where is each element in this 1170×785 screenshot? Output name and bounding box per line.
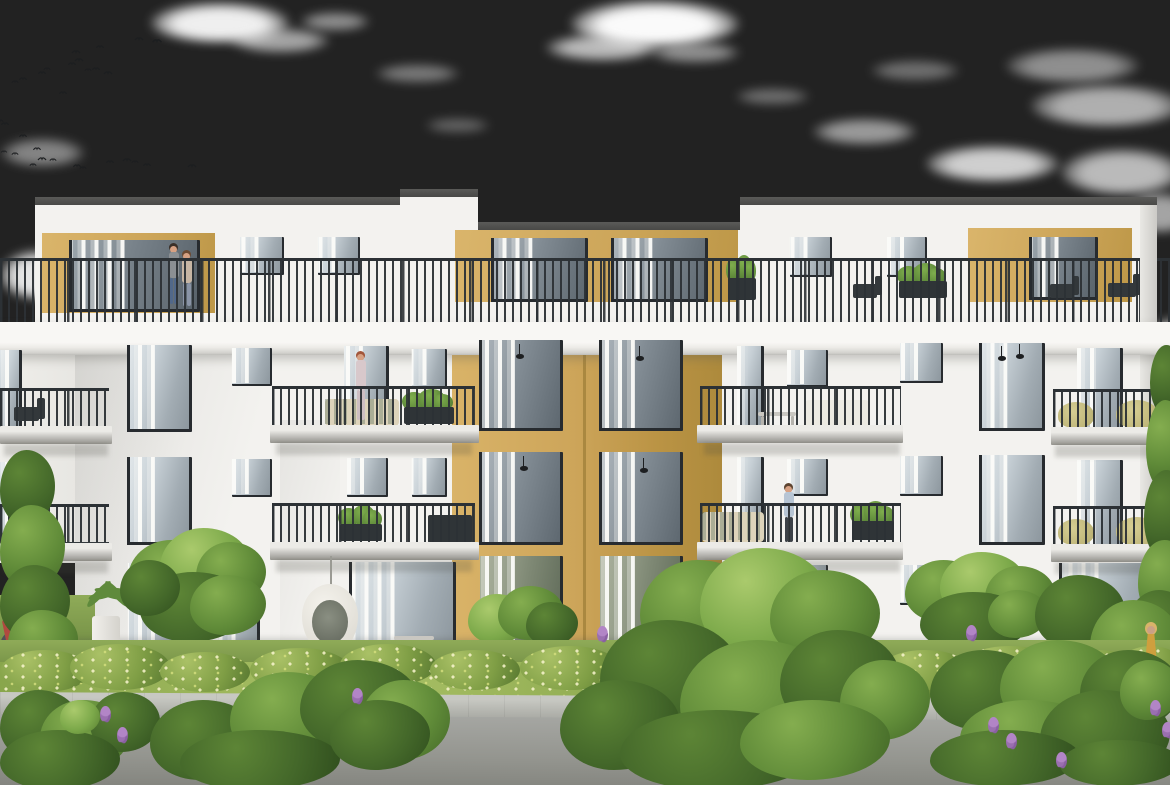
bird-icon [1, 151, 7, 152]
bird-icon [143, 164, 150, 166]
gold-panel-seam [583, 322, 586, 672]
pendant-lamp [640, 468, 648, 473]
hedge-bush [70, 644, 170, 690]
curtain [412, 458, 427, 494]
bird-icon [106, 161, 113, 163]
lilac-flowers [352, 688, 363, 705]
curtain [980, 455, 1007, 542]
curtain [128, 345, 155, 429]
roof-slab [740, 197, 1157, 205]
bird-icon [59, 92, 66, 94]
bird-icon [135, 38, 143, 40]
pendant-lamp-cord [1001, 346, 1002, 356]
foreground-shrub [1060, 740, 1170, 785]
bird-icon [132, 161, 138, 163]
bird-icon [30, 164, 36, 166]
cloud [1030, 84, 1170, 126]
cloud [375, 64, 460, 82]
bird-icon [96, 46, 103, 48]
cloud [425, 118, 490, 132]
bird-icon [68, 63, 75, 65]
egg-chair-opening [312, 600, 348, 644]
cloud [735, 88, 810, 104]
window-mullion [979, 343, 982, 431]
window [232, 348, 272, 386]
cloud [545, 34, 660, 60]
window-mullion [979, 455, 982, 545]
lilac-flowers [988, 717, 999, 734]
curtain [600, 452, 635, 542]
window [900, 343, 943, 383]
balcony-slab [270, 425, 479, 443]
window-mullion [599, 452, 602, 545]
curtain [347, 458, 364, 494]
bird-icon [0, 120, 3, 122]
window [600, 340, 683, 431]
lilac-flowers [1006, 733, 1017, 750]
lilac-flowers [597, 626, 608, 643]
window [900, 456, 943, 496]
foreground-shrub [1120, 660, 1170, 720]
lilac-flowers [966, 625, 977, 642]
curtain [128, 457, 155, 542]
window [412, 349, 447, 388]
window [787, 350, 828, 387]
pendant-lamp-cord [523, 456, 524, 466]
pendant-lamp-cord [643, 458, 644, 468]
bird-icon [19, 135, 26, 137]
curtain [412, 349, 427, 385]
bird-icon [73, 165, 80, 167]
bird-icon [19, 78, 26, 80]
balcony-slab [270, 542, 479, 560]
bird-icon [75, 59, 83, 61]
curtain [900, 343, 918, 380]
bird-icon [80, 167, 86, 169]
bird-icon [38, 158, 46, 160]
cloud [925, 145, 1060, 181]
swing-rope [330, 556, 332, 586]
window-mullion [127, 345, 130, 432]
bird-icon [1, 123, 8, 125]
roof-terrace-railing [0, 258, 1170, 326]
bird-icon [92, 68, 99, 70]
bird-icon [12, 153, 18, 155]
pendant-lamp [998, 356, 1006, 361]
bird-icon [38, 72, 45, 74]
bird-icon [12, 81, 18, 83]
roof-slab [478, 222, 740, 230]
balcony-railing [700, 503, 901, 544]
balcony-shadow [704, 443, 900, 455]
window [600, 452, 683, 545]
curtain [900, 456, 918, 493]
bird-icon [44, 68, 50, 70]
bird-icon [123, 159, 131, 161]
curtain [787, 350, 804, 384]
bird-icon [104, 72, 112, 74]
person-head [1147, 626, 1155, 634]
lilac-flowers [1056, 752, 1067, 769]
curtain [600, 340, 635, 428]
cloud [812, 118, 917, 144]
balcony-railing [700, 386, 901, 427]
cloud [300, 12, 370, 30]
bird-icon [188, 165, 196, 167]
pendant-lamp [520, 466, 528, 471]
roof-slab [35, 197, 400, 205]
cloud [1005, 48, 1140, 82]
window [787, 459, 828, 496]
bird-icon [85, 69, 91, 71]
balcony-slab [697, 425, 903, 443]
cloud [1060, 148, 1170, 194]
bird-icon [72, 51, 80, 53]
foreground-shrub [0, 730, 120, 785]
cloud [650, 42, 740, 62]
bird-icon [153, 40, 162, 42]
cloud [230, 28, 330, 52]
pendant-lamp-cord [519, 344, 520, 354]
balcony-shadow [276, 560, 472, 572]
balcony-railing [272, 503, 475, 544]
pendant-lamp [636, 356, 644, 361]
lilac-flowers [100, 706, 111, 723]
pendant-lamp-cord [639, 346, 640, 356]
window [412, 458, 447, 497]
pendant-lamp [1016, 354, 1024, 359]
window [980, 455, 1045, 545]
curtain [232, 459, 249, 494]
lilac-flowers [117, 727, 128, 744]
curtain [480, 340, 515, 428]
window [980, 343, 1045, 431]
roof-slab [400, 189, 478, 197]
window-mullion [479, 452, 482, 545]
architectural-rendering-scene [0, 0, 1170, 785]
balcony-railing [272, 386, 475, 427]
curtain [232, 348, 249, 383]
pendant-lamp-cord [1019, 344, 1020, 354]
window-mullion [599, 340, 602, 431]
balcony-shadow [276, 443, 472, 455]
lilac-flowers [1150, 700, 1161, 717]
window-mullion [479, 340, 482, 431]
window [128, 345, 192, 432]
window [232, 459, 272, 497]
lilac-flowers [1162, 722, 1170, 739]
bird-flock [0, 18, 240, 208]
balcony-railing [0, 388, 109, 428]
hedge-bush [430, 650, 520, 690]
bird-icon [33, 148, 40, 150]
hedge-bush [160, 652, 250, 692]
bird-icon [50, 159, 56, 161]
foreground-shrub [180, 730, 340, 785]
balcony-slab [0, 426, 112, 444]
curtain [480, 452, 515, 542]
window [347, 458, 388, 497]
pendant-lamp [516, 354, 524, 359]
cloud [870, 60, 960, 80]
window-mullion [127, 457, 130, 545]
